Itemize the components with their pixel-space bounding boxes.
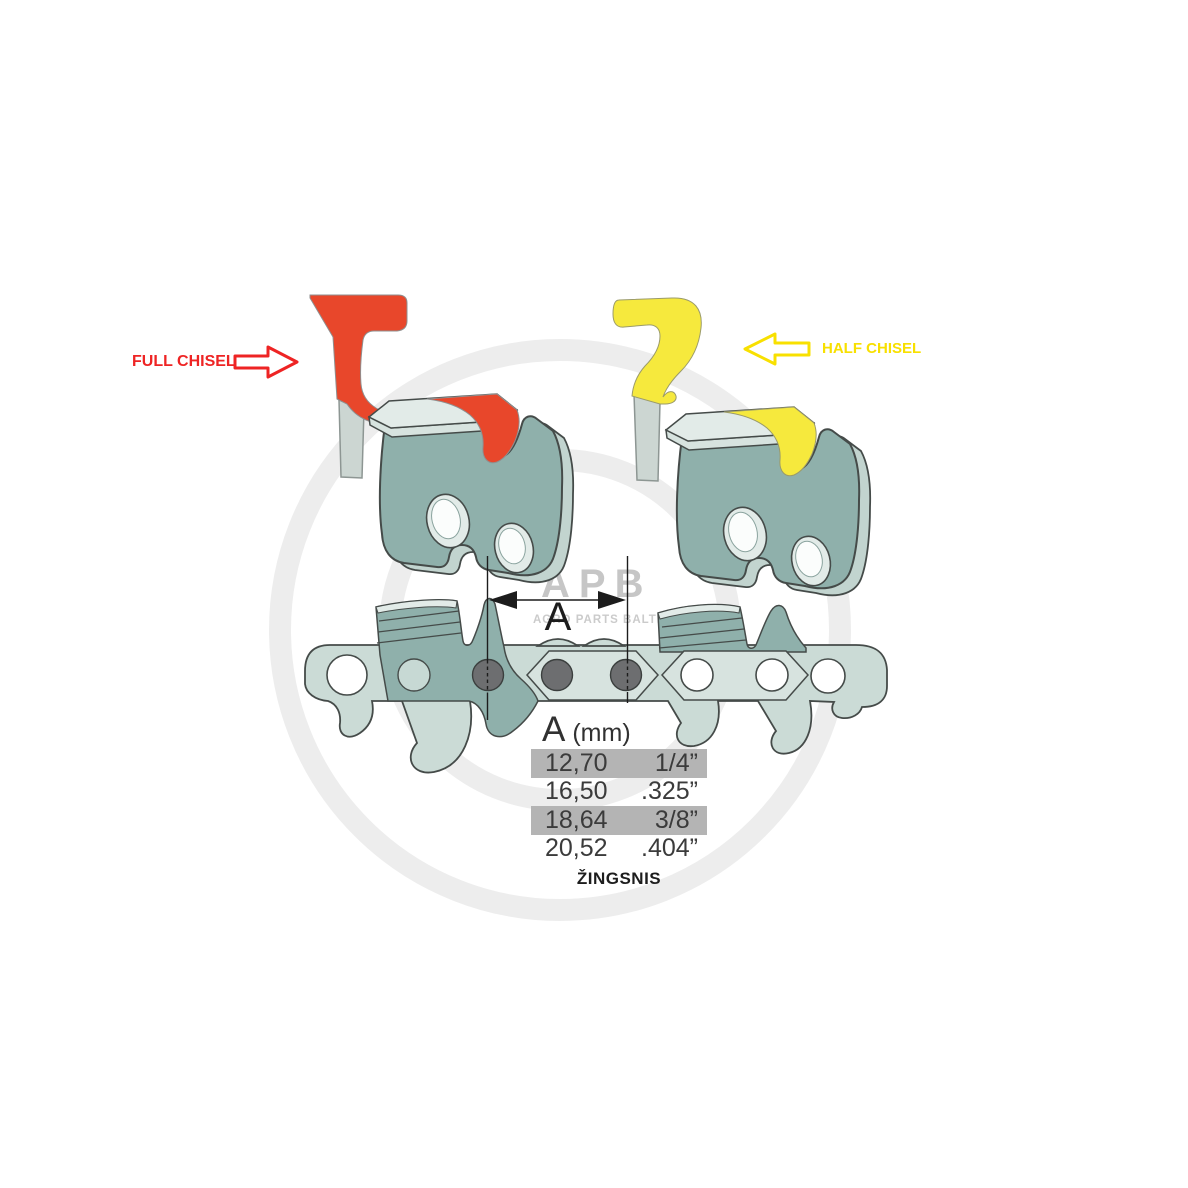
chain-hole <box>681 659 713 691</box>
pitch-table-caption: ŽINGSNIS <box>531 869 707 889</box>
pitch-table-header-unit: (mm) <box>572 719 630 748</box>
pitch-table-row: 12,70 1/4” <box>531 749 707 778</box>
pitch-table: A (mm) 12,70 1/4” 16,50 .325” 18,64 3/8”… <box>531 710 707 889</box>
half-chisel-arrow-icon <box>745 334 809 364</box>
pitch-table-header: A (mm) <box>531 710 707 749</box>
pitch-table-row: 20,52 .404” <box>531 835 707 864</box>
pitch-inch-value: 3/8” <box>655 806 698 835</box>
cutter-link-full-chisel <box>369 394 573 582</box>
half-chisel-label: HALF CHISEL <box>822 340 921 357</box>
chain-cutter-right <box>658 605 806 652</box>
pitch-dimension-label: A <box>540 595 576 640</box>
tie-strap-bump <box>584 639 624 646</box>
pitch-inch-value: .325” <box>641 777 698 806</box>
pitch-mm-value: 12,70 <box>545 749 608 778</box>
cutter-link-half-chisel <box>666 407 870 595</box>
chain-hole <box>398 659 430 691</box>
pitch-mm-value: 20,52 <box>545 834 608 863</box>
pitch-inch-value: .404” <box>641 834 698 863</box>
pitch-inch-value: 1/4” <box>655 749 698 778</box>
pitch-table-row: 18,64 3/8” <box>531 806 707 835</box>
pitch-table-row: 16,50 .325” <box>531 778 707 807</box>
pitch-mm-value: 16,50 <box>545 777 608 806</box>
chain-hole <box>327 655 367 695</box>
chainsaw-chain-diagram: APB AGRO PARTS BALTIJA <box>0 0 1188 1188</box>
chain-hole <box>811 659 845 693</box>
full-chisel-label: FULL CHISEL <box>132 353 236 371</box>
half-chisel-shank <box>634 394 660 481</box>
chain-rivet <box>611 660 642 691</box>
chain-rivet <box>542 660 573 691</box>
pitch-mm-value: 18,64 <box>545 806 608 835</box>
chain-hole <box>756 659 788 691</box>
tie-strap-bump <box>538 639 578 646</box>
full-chisel-arrow-icon <box>235 347 297 377</box>
pitch-table-header-letter: A <box>542 710 565 750</box>
diagram-artwork: APB AGRO PARTS BALTIJA <box>0 0 1188 1188</box>
